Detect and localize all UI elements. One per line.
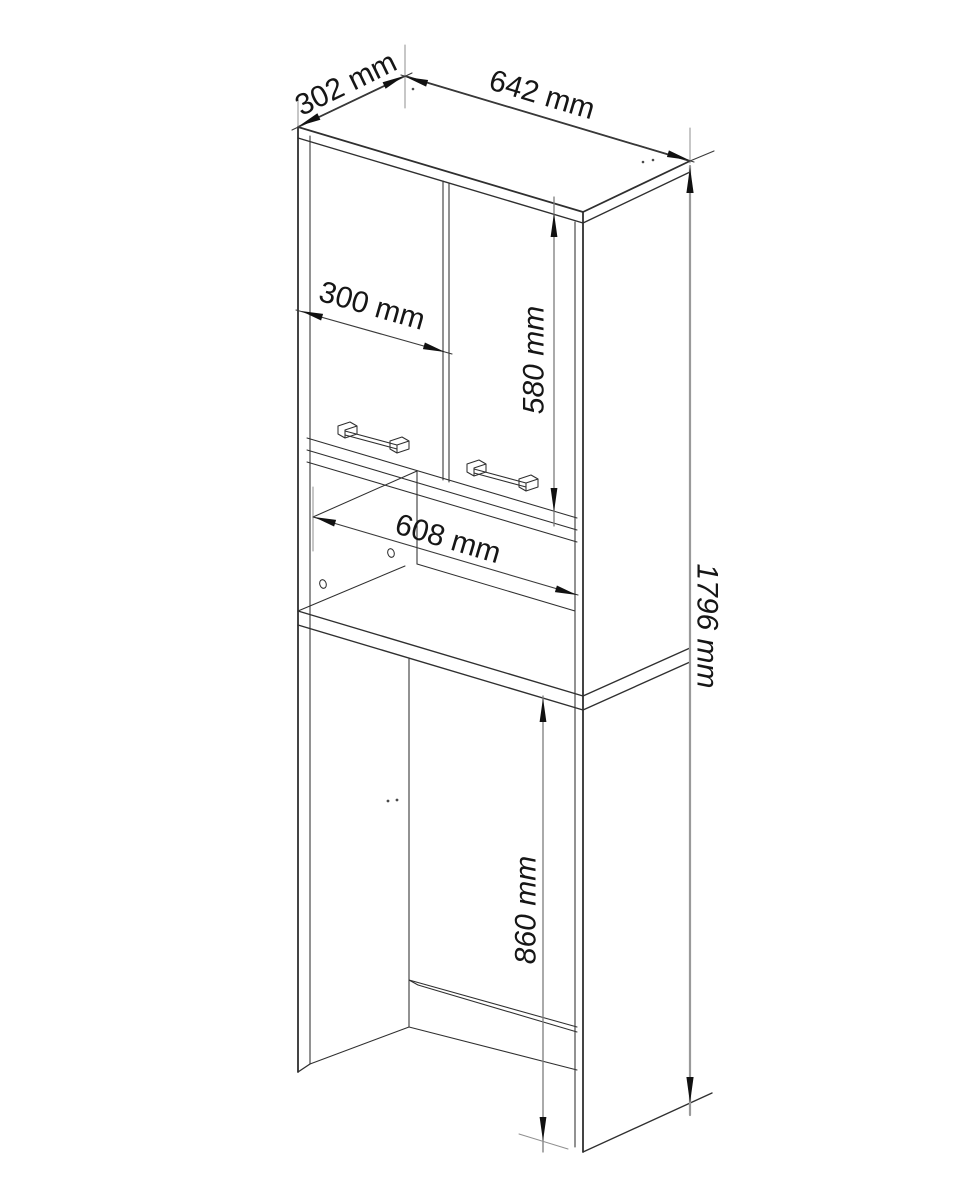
mounting-dot — [387, 800, 390, 803]
dimension-1796: 1796 mm — [686, 166, 723, 1115]
dim-label-860: 860 mm — [510, 856, 543, 964]
arrowhead — [540, 698, 547, 722]
arrowhead — [551, 488, 558, 512]
arrowhead — [551, 213, 558, 237]
dimension-300: 300 mm — [296, 275, 452, 354]
middle-divider-shelf — [298, 611, 690, 710]
shelf-pin-hole — [387, 548, 396, 558]
right-door-handle — [467, 460, 538, 491]
arrowhead — [686, 167, 693, 193]
dimension-302: 302 mm — [290, 45, 412, 130]
left-door-handle — [338, 422, 409, 453]
cabinet-technical-drawing: 302 mm 642 mm 300 mm 580 mm 608 mm 1796 … — [0, 0, 973, 1200]
arrowhead — [406, 77, 428, 87]
arrowhead — [314, 517, 336, 527]
dimension-860: 860 mm — [510, 696, 569, 1152]
dim-label-300: 300 mm — [315, 275, 428, 337]
arrowhead — [301, 311, 323, 321]
dim-label-608: 608 mm — [391, 508, 504, 570]
cabinet-top-face — [298, 76, 690, 223]
shelf-pin-hole — [319, 579, 328, 589]
cabinet-side-edges — [298, 127, 712, 1152]
arrowhead — [540, 1117, 547, 1141]
technical-drawing-page: 302 mm 642 mm 300 mm 580 mm 608 mm 1796 … — [0, 0, 973, 1200]
arrowhead — [686, 1077, 693, 1103]
mounting-dot — [396, 799, 399, 802]
arrowhead — [423, 343, 445, 353]
dim-label-1796: 1796 mm — [691, 563, 724, 688]
dim-label-580: 580 mm — [518, 306, 551, 414]
dimension-580: 580 mm — [518, 197, 558, 526]
arrowhead — [555, 586, 577, 596]
dimension-642: 642 mm — [401, 64, 714, 163]
arrowhead — [667, 150, 689, 160]
